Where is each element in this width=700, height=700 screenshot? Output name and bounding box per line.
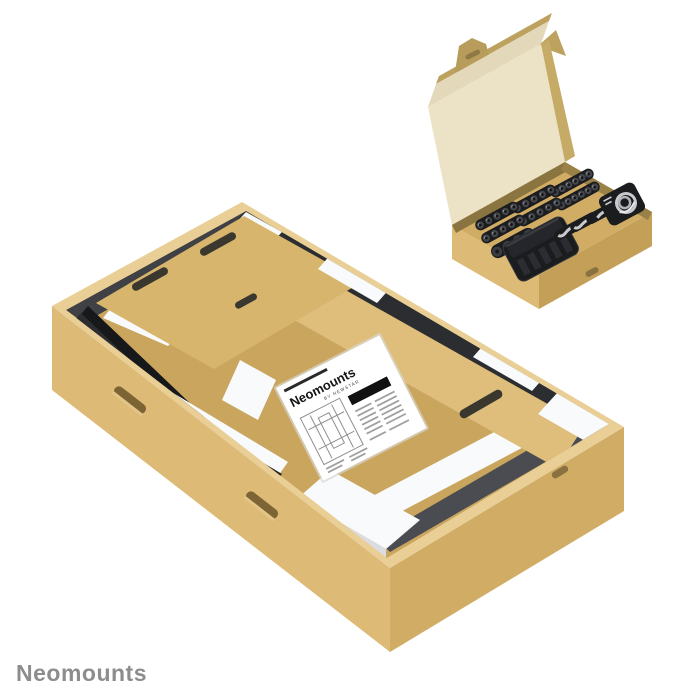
- brand-wordmark: Neomounts: [16, 660, 147, 687]
- product-photo: Neomounts BY NEWSTAR: [0, 0, 700, 700]
